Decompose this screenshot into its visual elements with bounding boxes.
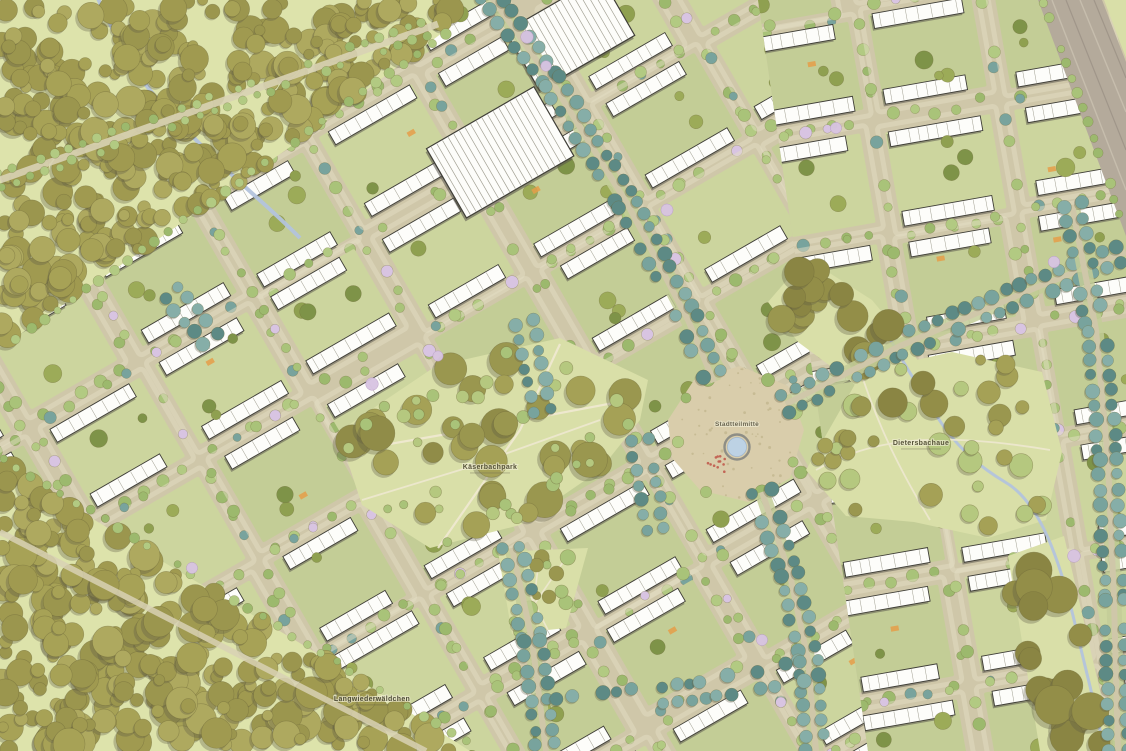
edge-tree-icon	[413, 50, 421, 58]
plaza-speckle	[724, 431, 727, 434]
boulevard-tree-icon	[596, 685, 611, 700]
corridor-tree-icon	[911, 371, 935, 395]
boulevard-tree-icon	[563, 121, 574, 132]
boulevard-tree-icon	[585, 124, 597, 136]
forest-tree-icon	[214, 658, 232, 676]
boulevard-tree-icon	[1114, 256, 1126, 269]
edge-tree-icon	[27, 323, 38, 334]
plaza-speckle	[742, 368, 744, 370]
forest-tree-icon	[9, 211, 29, 231]
edge-tree-icon	[11, 335, 20, 344]
edge-tree-icon	[57, 490, 64, 497]
park-tree-icon	[560, 361, 573, 374]
forest-tree-icon	[52, 586, 65, 599]
boulevard-tree-icon	[693, 676, 706, 689]
boulevard-tree-icon	[818, 728, 829, 739]
boulevard-tree-icon	[528, 738, 541, 751]
forest-tree-icon	[125, 228, 142, 245]
park-tree-icon	[443, 538, 452, 547]
plaza-speckle	[779, 421, 781, 423]
boulevard-tree-icon	[932, 315, 943, 326]
boulevard-tree-icon	[490, 16, 504, 30]
boulevard-tree-icon	[680, 329, 694, 343]
boulevard-tree-icon	[539, 663, 552, 676]
boulevard-tree-icon	[514, 541, 525, 552]
plaza-speckle	[789, 452, 791, 454]
edge-tree-icon	[26, 472, 36, 482]
meadow-tree-icon	[979, 517, 997, 535]
alley-tree-icon	[337, 62, 344, 69]
forest-tree-icon	[286, 28, 302, 44]
boulevard-tree-icon	[496, 542, 508, 554]
boulevard-tree-icon	[611, 687, 622, 698]
forest-tree-icon	[50, 664, 72, 686]
edge-tree-icon	[261, 159, 269, 167]
forest-tree-icon	[29, 236, 55, 262]
plaza-speckle	[691, 453, 693, 455]
boulevard-tree-icon	[1093, 298, 1107, 312]
forest-tree-icon	[49, 267, 72, 290]
alley-tree-icon	[197, 112, 204, 119]
alley-tree-icon	[423, 32, 432, 41]
boulevard-tree-icon	[663, 259, 676, 272]
boulevard-tree-icon	[593, 169, 605, 181]
forest-tree-icon	[40, 59, 54, 73]
plaza-speckle	[681, 419, 683, 421]
forest-tree-icon	[34, 683, 47, 696]
forest-tree-icon	[155, 571, 177, 593]
boulevard-tree-icon	[816, 368, 830, 382]
alley-tree-icon	[0, 183, 6, 191]
boulevard-tree-icon	[691, 309, 704, 322]
edge-tree-icon	[164, 227, 173, 236]
boulevard-tree-icon	[776, 524, 790, 538]
plaza-tree-icon	[700, 486, 711, 497]
park-tree-icon	[511, 512, 522, 523]
forest-tree-icon	[79, 58, 92, 71]
park-tree-icon	[427, 390, 439, 402]
alley-tree-icon	[407, 35, 417, 45]
forest-tree-icon	[40, 38, 60, 58]
market-dot	[723, 470, 726, 473]
boulevard-tree-icon	[1075, 195, 1089, 209]
forest-tree-icon	[158, 721, 179, 742]
boulevard-tree-icon	[755, 515, 769, 529]
park-tree-icon	[400, 500, 408, 508]
boulevard-tree-icon	[903, 324, 916, 337]
boulevard-tree-icon	[642, 257, 656, 271]
boulevard-tree-icon	[958, 301, 971, 314]
corridor-tree-icon	[1105, 178, 1116, 189]
boulevard-tree-icon	[1109, 240, 1124, 255]
alley-tree-icon	[193, 100, 202, 109]
forest-tree-icon	[192, 596, 217, 621]
boulevard-tree-icon	[824, 385, 835, 396]
plaza-speckle	[752, 433, 754, 435]
edge-tree-icon	[345, 668, 353, 676]
plaza-speckle	[759, 383, 760, 384]
plaza-speckle	[767, 409, 769, 411]
alley-tree-icon	[13, 179, 20, 186]
park-tree-icon	[610, 394, 624, 408]
plaza-speckle	[708, 396, 711, 399]
boulevard-tree-icon	[779, 585, 790, 596]
forest-tree-icon	[91, 198, 115, 222]
alley-tree-icon	[304, 60, 312, 68]
meadow-tree-icon	[920, 483, 943, 506]
forest-tree-icon	[154, 209, 171, 226]
alley-tree-icon	[205, 93, 213, 101]
boulevard-tree-icon	[1101, 261, 1114, 274]
boulevard-tree-icon	[618, 174, 630, 186]
edge-tree-icon	[384, 68, 395, 79]
boulevard-tree-icon	[797, 698, 810, 711]
meadow-tree-icon	[840, 430, 856, 446]
boulevard-tree-icon	[555, 106, 566, 117]
boulevard-tree-icon	[815, 700, 826, 711]
plaza-tree-icon	[761, 373, 774, 386]
boulevard-tree-icon	[526, 583, 538, 595]
boulevard-tree-icon	[701, 338, 715, 352]
boulevard-tree-icon	[1083, 340, 1096, 353]
alley-tree-icon	[40, 166, 49, 175]
boulevard-tree-icon	[539, 80, 552, 93]
corridor-tree-icon	[1019, 647, 1041, 669]
forest-tree-icon	[81, 239, 104, 262]
plaza-speckle	[703, 453, 705, 455]
plaza-speckle	[745, 431, 748, 434]
boulevard-tree-icon	[784, 540, 795, 551]
meadow-tree-icon	[818, 438, 833, 453]
forest-tree-icon	[46, 71, 71, 96]
alley-tree-icon	[393, 41, 402, 50]
forest-tree-icon	[56, 194, 71, 209]
corridor-tree-icon	[1057, 45, 1064, 52]
forest-tree-icon	[78, 107, 90, 119]
park-tree-icon	[585, 432, 595, 442]
park-tree-icon	[551, 472, 563, 484]
boulevard-tree-icon	[532, 612, 543, 623]
edge-tree-icon	[0, 455, 8, 463]
fountain-water	[728, 438, 747, 457]
forest-tree-icon	[180, 45, 208, 73]
boulevard-tree-icon	[517, 51, 530, 64]
park-tree-icon	[459, 423, 484, 448]
alley-tree-icon	[361, 40, 369, 48]
boulevard-tree-icon	[592, 135, 604, 147]
edge-tree-icon	[123, 256, 133, 266]
meadow-tree-icon	[819, 472, 836, 489]
forest-tree-icon	[27, 508, 40, 521]
corridor-tree-icon	[1069, 624, 1092, 647]
boulevard-tree-icon	[897, 349, 908, 360]
alley-tree-icon	[56, 164, 64, 172]
edge-tree-icon	[344, 97, 354, 107]
boulevard-tree-icon	[805, 626, 816, 637]
alley-tree-icon	[36, 154, 45, 163]
forest-tree-icon	[181, 699, 196, 714]
forest-tree-icon	[251, 139, 262, 150]
edge-tree-icon	[143, 542, 151, 550]
boulevard-tree-icon	[670, 310, 682, 322]
boulevard-tree-icon	[708, 352, 720, 364]
forest-tree-icon	[334, 715, 358, 739]
forest-tree-icon	[233, 116, 248, 131]
boulevard-tree-icon	[797, 596, 811, 610]
forest-tree-icon	[15, 496, 29, 510]
boulevard-tree-icon	[800, 730, 813, 743]
edge-tree-icon	[193, 206, 202, 215]
park-tree-icon	[542, 590, 556, 604]
park-tree-icon	[501, 347, 513, 359]
forest-tree-icon	[0, 516, 13, 532]
park-tree-icon	[480, 376, 493, 389]
boulevard-tree-icon	[815, 714, 827, 726]
edge-tree-icon	[304, 126, 313, 135]
boulevard-tree-icon	[634, 243, 646, 255]
boulevard-tree-icon	[754, 682, 768, 696]
park-tree-icon	[555, 585, 568, 598]
boulevard-tree-icon	[994, 307, 1005, 318]
boulevard-tree-icon	[506, 588, 519, 601]
alley-tree-icon	[67, 155, 77, 165]
edge-tree-icon	[110, 265, 120, 275]
edge-tree-icon	[54, 307, 61, 314]
forest-tree-icon	[11, 276, 29, 294]
corridor-tree-icon	[1078, 103, 1087, 112]
edge-tree-icon	[174, 561, 181, 568]
boulevard-tree-icon	[620, 217, 632, 229]
boulevard-tree-icon	[671, 678, 684, 691]
alley-tree-icon	[238, 96, 247, 105]
edge-tree-icon	[179, 215, 187, 223]
plaza-speckle	[739, 387, 741, 389]
forest-tree-icon	[218, 702, 230, 714]
boulevard-tree-icon	[1057, 200, 1071, 214]
boulevard-tree-icon	[1039, 269, 1052, 282]
boulevard-tree-icon	[809, 640, 821, 652]
corridor-tree-icon	[873, 309, 905, 341]
meadow-tree-icon	[849, 503, 862, 516]
plaza-speckle	[768, 446, 771, 449]
alley-tree-icon	[50, 149, 60, 159]
meadow-tree-icon	[997, 450, 1013, 466]
boulevard-tree-icon	[797, 400, 808, 411]
boulevard-tree-icon	[1076, 305, 1088, 317]
alley-tree-icon	[247, 79, 255, 87]
edge-tree-icon	[317, 649, 325, 657]
plaza-speckle	[729, 385, 731, 387]
meadow-tree-icon	[868, 436, 879, 447]
alley-tree-icon	[416, 18, 425, 27]
edge-tree-icon	[247, 167, 255, 175]
boulevard-tree-icon	[878, 359, 891, 372]
forest-tree-icon	[11, 69, 29, 87]
meadow-tree-icon	[1017, 505, 1034, 522]
forest-tree-icon	[78, 159, 89, 170]
masterplan-svg: Käserbachpark Stadtteilmitte Dietersbach…	[0, 0, 1126, 751]
forest-tree-icon	[90, 603, 102, 615]
forest-tree-icon	[66, 519, 89, 542]
boulevard-tree-icon	[725, 688, 738, 701]
edge-tree-icon	[206, 197, 217, 208]
boulevard-tree-icon	[526, 709, 537, 720]
boulevard-tree-icon	[1063, 229, 1077, 243]
plaza-speckle	[709, 429, 712, 432]
plaza-speckle	[698, 425, 700, 427]
park-tree-icon	[379, 401, 390, 412]
plaza-tree-icon	[788, 457, 798, 467]
alley-tree-icon	[345, 42, 355, 52]
park-tree-icon	[472, 391, 485, 404]
forest-tree-icon	[233, 62, 252, 81]
forest-tree-icon	[198, 158, 224, 184]
meadow-tree-icon	[976, 355, 986, 365]
forest-tree-icon	[184, 143, 203, 162]
park-tree-icon	[413, 438, 422, 447]
corridor-tree-icon	[1093, 148, 1103, 158]
boulevard-tree-icon	[854, 349, 867, 362]
boulevard-tree-icon	[1046, 284, 1061, 299]
boulevard-tree-icon	[981, 312, 992, 323]
plaza-tree-icon	[681, 393, 691, 403]
park-tree-icon	[415, 502, 436, 523]
forest-tree-icon	[283, 652, 302, 671]
forest-tree-icon	[41, 124, 56, 139]
plaza-speckle	[722, 485, 724, 487]
meadow-tree-icon	[1009, 454, 1032, 477]
alley-tree-icon	[281, 80, 290, 89]
edge-tree-icon	[73, 500, 81, 508]
corridor-tree-icon	[878, 388, 907, 417]
forest-tree-icon	[78, 2, 104, 28]
boulevard-tree-icon	[783, 614, 795, 626]
boulevard-tree-icon	[812, 394, 823, 405]
edge-tree-icon	[428, 39, 436, 47]
forest-tree-icon	[205, 4, 220, 19]
boulevard-tree-icon	[697, 325, 708, 336]
boulevard-tree-icon	[525, 695, 538, 708]
forest-tree-icon	[92, 709, 116, 733]
plaza-speckle	[779, 483, 781, 485]
boulevard-tree-icon	[601, 150, 612, 161]
alley-tree-icon	[235, 85, 242, 92]
boulevard-tree-icon	[626, 185, 637, 196]
boulevard-tree-icon	[1077, 213, 1089, 225]
park-tree-icon	[435, 505, 443, 513]
forest-tree-icon	[183, 69, 195, 81]
boulevard-tree-icon	[544, 92, 557, 105]
alley-tree-icon	[108, 127, 117, 136]
corridor-tree-icon	[1068, 75, 1076, 83]
boulevard-tree-icon	[501, 558, 515, 572]
edge-tree-icon	[101, 515, 109, 523]
boulevard-tree-icon	[764, 482, 779, 497]
forest-tree-icon	[204, 115, 224, 135]
corridor-tree-icon	[1019, 592, 1048, 621]
meadow-tree-icon	[973, 481, 984, 492]
forest-tree-icon	[114, 45, 140, 71]
plaza-speckle	[761, 436, 763, 438]
boulevard-tree-icon	[561, 84, 573, 96]
boulevard-tree-icon	[511, 617, 525, 631]
boulevard-tree-icon	[1006, 301, 1019, 314]
edge-tree-icon	[39, 314, 50, 325]
alley-tree-icon	[110, 140, 119, 149]
meadow-tree-icon	[895, 363, 907, 375]
boulevard-tree-icon	[911, 342, 925, 356]
boulevard-tree-icon	[651, 234, 662, 245]
park-tree-icon	[623, 419, 634, 430]
edge-tree-icon	[69, 296, 76, 303]
boulevard-tree-icon	[508, 41, 520, 53]
forest-tree-icon	[378, 0, 402, 22]
park-tree-icon	[560, 550, 575, 565]
boulevard-tree-icon	[522, 569, 534, 581]
boulevard-tree-icon	[533, 41, 546, 54]
edge-tree-icon	[129, 533, 140, 544]
boulevard-tree-icon	[797, 713, 810, 726]
boulevard-tree-icon	[521, 679, 536, 694]
boulevard-tree-icon	[919, 320, 931, 332]
forest-tree-icon	[134, 719, 151, 736]
forest-tree-icon	[8, 565, 37, 594]
boulevard-tree-icon	[1082, 326, 1094, 338]
boulevard-tree-icon	[972, 296, 985, 309]
boulevard-tree-icon	[517, 634, 532, 649]
boulevard-tree-icon	[951, 322, 965, 336]
edge-tree-icon	[288, 633, 297, 642]
boulevard-tree-icon	[553, 70, 567, 84]
boulevard-tree-icon	[803, 610, 816, 623]
corridor-tree-icon	[784, 257, 814, 287]
park-tree-icon	[573, 460, 581, 468]
boulevard-tree-icon	[1067, 247, 1078, 258]
corridor-tree-icon	[1044, 13, 1054, 23]
park-tree-icon	[494, 411, 518, 435]
plaza-speckle	[743, 411, 746, 414]
forest-tree-icon	[224, 1, 240, 17]
plaza-speckle	[757, 433, 759, 435]
plaza-speckle	[732, 468, 735, 471]
forest-tree-icon	[115, 650, 131, 666]
forest-tree-icon	[262, 710, 273, 721]
boulevard-tree-icon	[1073, 287, 1087, 301]
boulevard-tree-icon	[612, 201, 626, 215]
plaza-speckle	[753, 392, 756, 395]
edge-tree-icon	[376, 686, 383, 693]
boulevard-tree-icon	[1102, 355, 1113, 366]
plaza-speckle	[750, 382, 752, 384]
edge-tree-icon	[235, 178, 244, 187]
boulevard-tree-icon	[1080, 226, 1094, 240]
boulevard-tree-icon	[779, 657, 793, 671]
corridor-tree-icon	[830, 282, 854, 306]
alley-tree-icon	[92, 133, 102, 143]
park-tree-icon	[500, 499, 512, 511]
plaza-speckle	[755, 436, 757, 438]
park-tree-icon	[343, 443, 354, 454]
meadow-tree-icon	[961, 505, 978, 522]
boulevard-tree-icon	[577, 109, 591, 123]
boulevard-tree-icon	[569, 132, 581, 144]
market-dot	[723, 458, 726, 461]
edge-tree-icon	[419, 712, 429, 722]
forest-tree-icon	[154, 675, 165, 686]
forest-tree-icon	[311, 36, 323, 48]
forest-tree-icon	[358, 736, 370, 748]
edge-tree-icon	[290, 138, 300, 148]
